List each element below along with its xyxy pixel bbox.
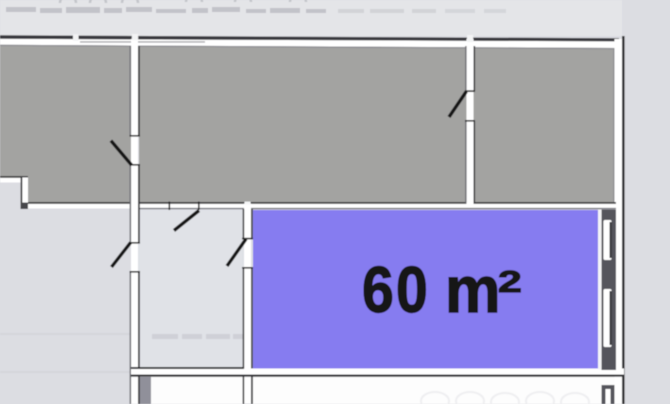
svg-text:2: 2 bbox=[498, 264, 522, 299]
svg-text:60: 60 bbox=[362, 254, 430, 326]
svg-text:m: m bbox=[445, 253, 500, 326]
